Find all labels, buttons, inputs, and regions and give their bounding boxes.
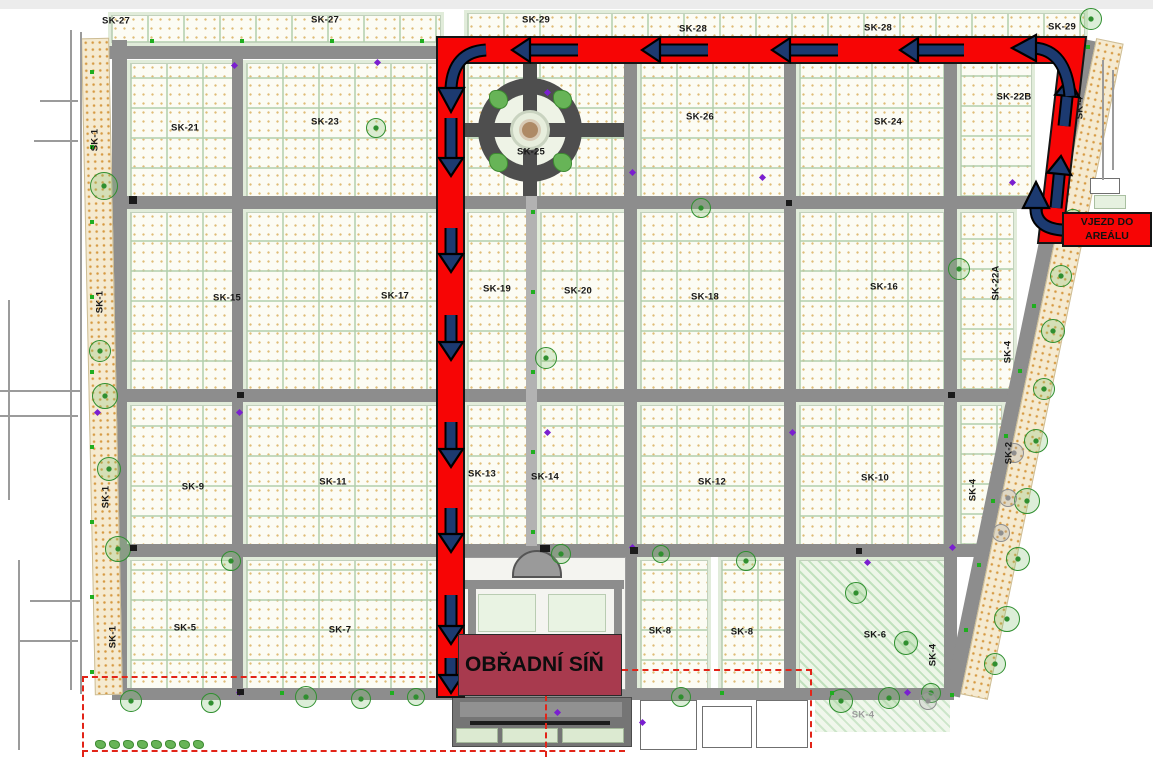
ceremonial-hall-label: OBŘADNÍ SÍŇ	[458, 634, 622, 696]
entrance-label-line2: AREÁLU	[1085, 230, 1129, 243]
route-arrow	[1064, 96, 1067, 126]
entrance-label: VJEZD DO AREÁLU	[1062, 212, 1152, 247]
route-arrow	[1056, 174, 1059, 208]
entrance-label-line1: VJEZD DO	[1081, 216, 1134, 229]
cemetery-site-plan: SK-27SK-27SK-29SK-28SK-28SK-29SK-21SK-23…	[0, 0, 1153, 757]
route-path	[437, 37, 1086, 697]
